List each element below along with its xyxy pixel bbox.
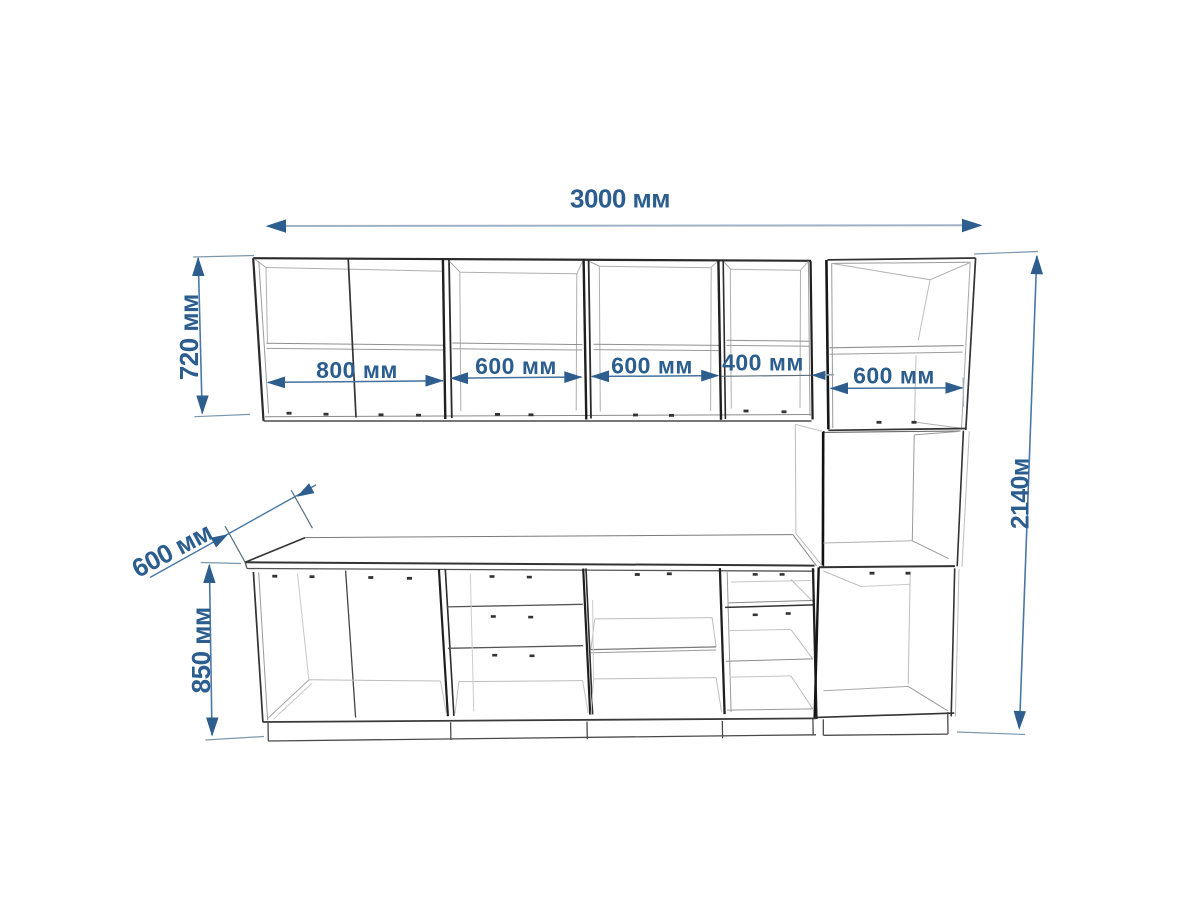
svg-text:3000 мм: 3000 мм <box>570 184 670 214</box>
svg-text:600 мм: 600 мм <box>853 363 935 389</box>
svg-text:850 мм: 850 мм <box>186 607 216 693</box>
svg-text:800 мм: 800 мм <box>316 357 398 383</box>
svg-text:720 мм: 720 мм <box>174 294 204 380</box>
svg-text:600 мм: 600 мм <box>475 353 557 379</box>
svg-text:400 мм: 400 мм <box>722 350 804 376</box>
svg-text:600 мм: 600 мм <box>611 353 693 379</box>
svg-text:2140м: 2140м <box>1007 458 1035 529</box>
